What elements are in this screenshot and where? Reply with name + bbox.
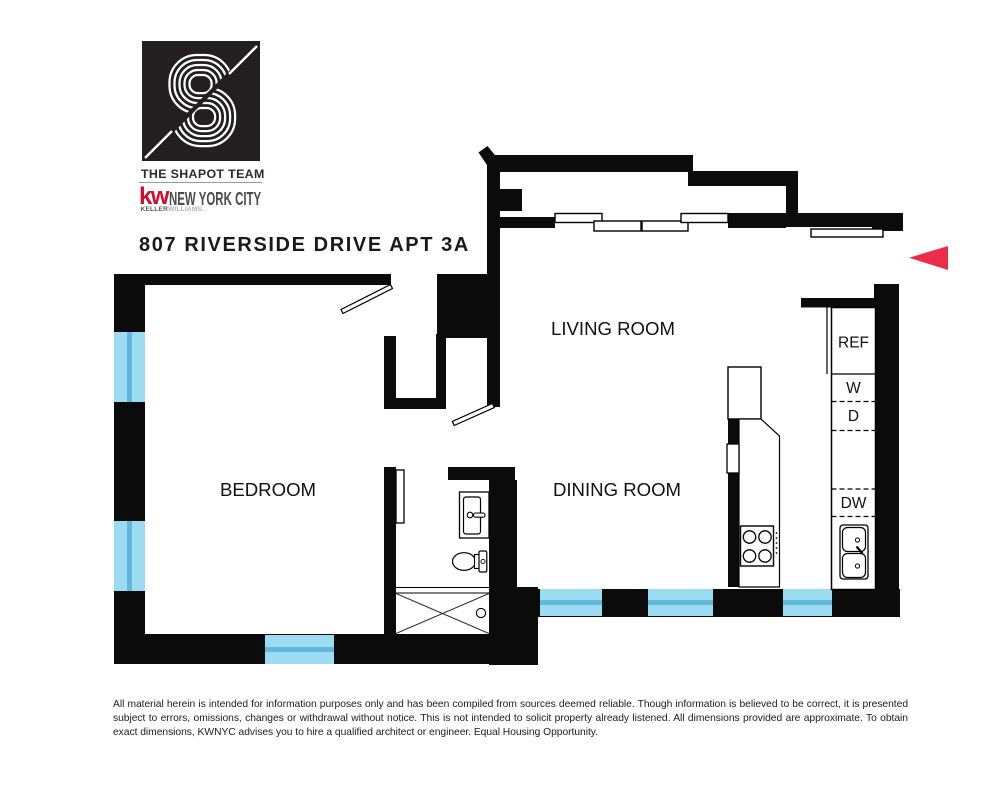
svg-text:W: W: [846, 380, 861, 397]
svg-text:REF: REF: [838, 335, 869, 352]
svg-text:D: D: [848, 408, 859, 425]
svg-text:DW: DW: [841, 495, 867, 512]
svg-text:BEDROOM: BEDROOM: [220, 479, 316, 500]
svg-text:DINING ROOM: DINING ROOM: [553, 479, 681, 500]
svg-text:LIVING ROOM: LIVING ROOM: [551, 318, 675, 339]
